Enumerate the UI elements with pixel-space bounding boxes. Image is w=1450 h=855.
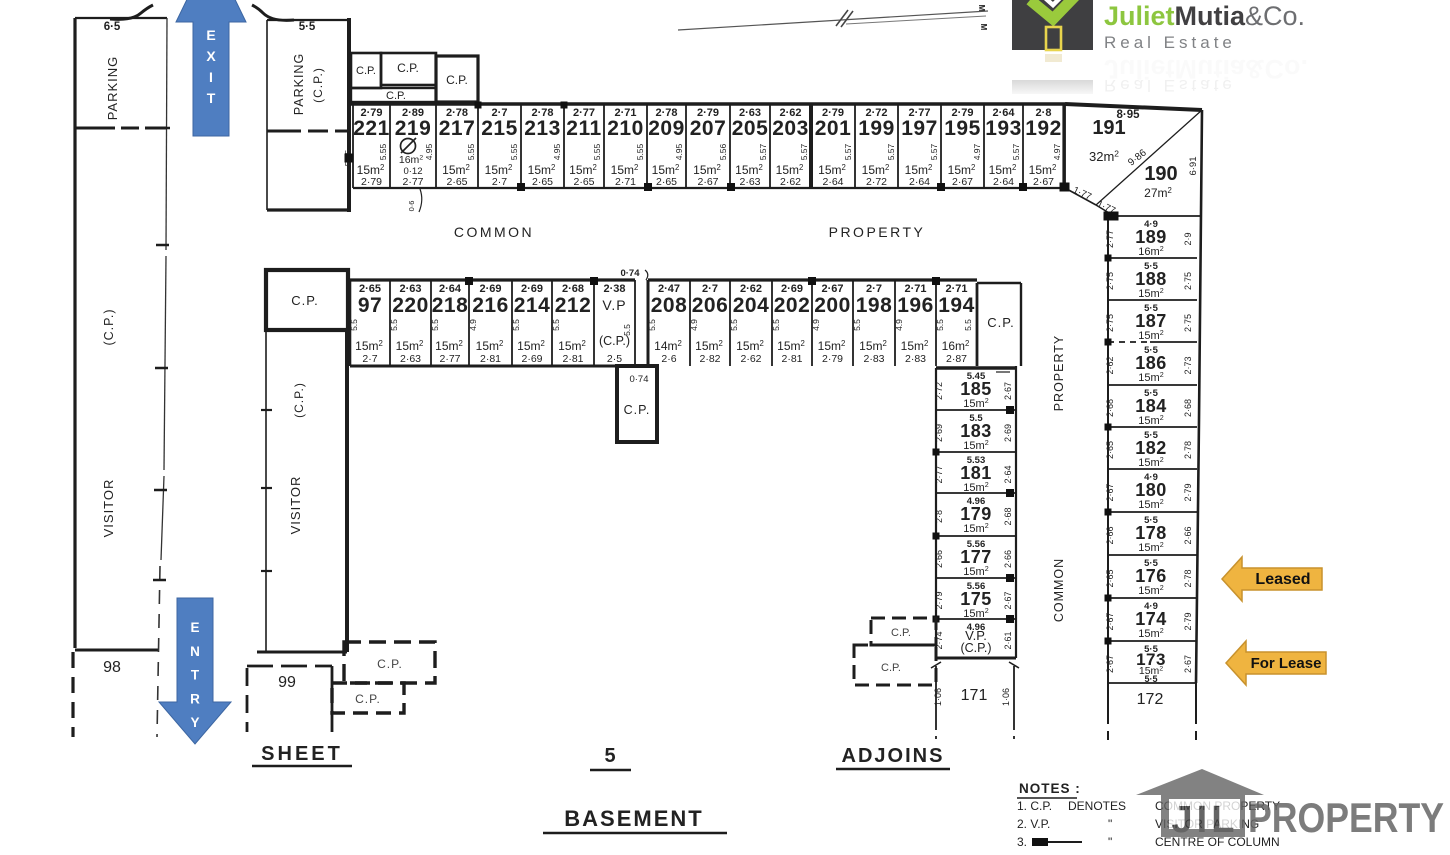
svg-text:5.55: 5.55 — [466, 143, 476, 160]
svg-text:2·75: 2·75 — [1105, 272, 1115, 290]
svg-text:2·64: 2·64 — [909, 176, 930, 188]
svg-text:2·81: 2·81 — [480, 353, 501, 365]
svg-text:5.5: 5.5 — [622, 324, 632, 336]
svg-text:4.95: 4.95 — [424, 143, 434, 160]
svg-text:175: 175 — [960, 589, 992, 609]
svg-text:2·67: 2·67 — [1003, 591, 1013, 609]
svg-text:97: 97 — [358, 294, 382, 317]
svg-text:218: 218 — [432, 294, 469, 317]
svg-text:2·79: 2·79 — [822, 353, 843, 365]
svg-text:2·65: 2·65 — [532, 176, 553, 188]
svg-text:203: 203 — [772, 117, 809, 140]
svg-text:2·69: 2·69 — [521, 353, 542, 365]
svg-text:199: 199 — [858, 117, 895, 140]
svg-text:2. V.P.: 2. V.P. — [1017, 817, 1050, 831]
svg-text:PROPERTY: PROPERTY — [1248, 794, 1444, 841]
svg-text:176: 176 — [1135, 566, 1167, 586]
svg-text:(C.P.): (C.P.) — [102, 308, 116, 345]
svg-text:4.9: 4.9 — [689, 319, 699, 331]
svg-text:C.P.: C.P. — [881, 662, 901, 674]
svg-text:2·82: 2·82 — [699, 353, 720, 365]
svg-text:5.55: 5.55 — [509, 143, 519, 160]
svg-text:2·62: 2·62 — [1105, 356, 1115, 374]
svg-text:2·68: 2·68 — [1105, 399, 1115, 417]
svg-text:4.9: 4.9 — [468, 319, 478, 331]
svg-text:C.P.: C.P. — [446, 73, 468, 87]
svg-text:205: 205 — [732, 117, 769, 140]
svg-text:2·9: 2·9 — [1183, 232, 1193, 245]
svg-text:C.P.: C.P. — [624, 403, 651, 417]
svg-text:209: 209 — [648, 117, 685, 140]
svg-text:2·77: 2·77 — [1105, 230, 1115, 248]
svg-text:195: 195 — [944, 117, 981, 140]
svg-text:PARKING: PARKING — [292, 53, 306, 115]
svg-text:5.56: 5.56 — [718, 143, 728, 160]
svg-text:JulietMutia&Co.: JulietMutia&Co. — [1104, 54, 1308, 84]
svg-text:2·83: 2·83 — [863, 353, 884, 365]
svg-text:5.5: 5.5 — [729, 319, 739, 331]
svg-text:192: 192 — [1025, 117, 1062, 140]
svg-text:211: 211 — [566, 117, 601, 140]
svg-text:C.P.: C.P. — [987, 315, 1015, 330]
svg-text:Y: Y — [190, 715, 199, 730]
svg-text:5.57: 5.57 — [929, 143, 939, 160]
svg-text:(C.P.): (C.P.) — [960, 641, 991, 655]
svg-text:2·67: 2·67 — [1105, 483, 1115, 501]
svg-text:SHEET: SHEET — [261, 743, 343, 765]
svg-text:C.P.: C.P. — [356, 65, 376, 77]
svg-text:1·06: 1·06 — [1001, 688, 1011, 706]
svg-text:198: 198 — [856, 294, 893, 317]
svg-text:5.55: 5.55 — [592, 143, 602, 160]
svg-text:2·67: 2·67 — [1033, 176, 1054, 188]
svg-text:DENOTES: DENOTES — [1068, 799, 1126, 813]
svg-text:5.5: 5.5 — [511, 319, 521, 331]
svg-text:2·67: 2·67 — [697, 176, 718, 188]
svg-text:PARKING: PARKING — [105, 56, 120, 121]
svg-text:2·79: 2·79 — [1183, 483, 1193, 501]
svg-text:C.P.: C.P. — [386, 90, 406, 102]
svg-text:5.57: 5.57 — [758, 143, 768, 160]
svg-text:99: 99 — [278, 674, 296, 691]
svg-text:2·7: 2·7 — [492, 176, 507, 188]
svg-text:2·65: 2·65 — [656, 176, 677, 188]
svg-text:3.: 3. — [1017, 835, 1027, 849]
svg-text:2·63: 2·63 — [739, 176, 760, 188]
svg-text:4.97: 4.97 — [972, 143, 982, 160]
svg-text:208: 208 — [651, 294, 688, 317]
svg-text:2·64: 2·64 — [993, 176, 1014, 188]
svg-text:4.9: 4.9 — [894, 319, 904, 331]
svg-text:5·5: 5·5 — [299, 21, 316, 33]
svg-text:202: 202 — [774, 294, 811, 317]
svg-text:196: 196 — [897, 294, 934, 317]
svg-text:2·69: 2·69 — [1003, 424, 1013, 442]
svg-text:": " — [1108, 817, 1112, 831]
svg-text:COMMON: COMMON — [1052, 558, 1066, 622]
svg-text:2·81: 2·81 — [562, 353, 583, 365]
svg-text:2·72: 2·72 — [934, 382, 944, 400]
svg-text:0·74: 0·74 — [620, 268, 640, 279]
svg-text:5.5: 5.5 — [935, 319, 945, 331]
svg-text:183: 183 — [960, 421, 992, 441]
svg-text:C.P.: C.P. — [891, 627, 911, 639]
svg-text:186: 186 — [1135, 353, 1167, 373]
svg-text:E: E — [206, 27, 215, 43]
svg-text:197: 197 — [901, 117, 938, 140]
svg-text:2·61: 2·61 — [1003, 631, 1013, 649]
svg-text:C.P.: C.P. — [291, 293, 319, 308]
svg-text:191: 191 — [1092, 117, 1125, 139]
svg-text:171: 171 — [961, 687, 988, 704]
svg-text:5.5: 5.5 — [551, 319, 561, 331]
svg-text:2·63: 2·63 — [400, 353, 421, 365]
svg-text:185: 185 — [960, 379, 992, 399]
svg-text:2·68: 2·68 — [1183, 399, 1193, 417]
svg-text:2·5: 2·5 — [607, 353, 622, 365]
svg-text:1·06: 1·06 — [933, 688, 943, 706]
svg-text:1. C.P.: 1. C.P. — [1017, 799, 1052, 813]
svg-text:2·6: 2·6 — [661, 353, 676, 365]
svg-text:": " — [1108, 835, 1112, 849]
svg-text:5.5: 5.5 — [647, 319, 657, 331]
svg-text:177: 177 — [960, 547, 992, 567]
svg-text:212: 212 — [555, 294, 592, 317]
svg-text:4.95: 4.95 — [674, 143, 684, 160]
svg-text:5.5: 5.5 — [349, 319, 359, 331]
svg-text:200: 200 — [814, 294, 851, 317]
svg-text:193: 193 — [985, 117, 1022, 140]
svg-text:204: 204 — [733, 294, 770, 317]
svg-text:5.5: 5.5 — [852, 319, 862, 331]
svg-text:2·75: 2·75 — [1105, 314, 1115, 332]
svg-text:201: 201 — [815, 117, 852, 140]
svg-text:2·67: 2·67 — [1003, 382, 1013, 400]
svg-text:2·67: 2·67 — [1105, 612, 1115, 630]
svg-text:2·66: 2·66 — [1003, 550, 1013, 568]
svg-text:181: 181 — [960, 463, 992, 483]
svg-text:Leased: Leased — [1255, 571, 1310, 588]
svg-text:2·65: 2·65 — [573, 176, 594, 188]
svg-text:210: 210 — [607, 117, 644, 140]
svg-text:179: 179 — [960, 504, 992, 524]
svg-text:5.5: 5.5 — [389, 319, 399, 331]
svg-text:213: 213 — [524, 117, 561, 140]
svg-text:R: R — [190, 691, 200, 706]
svg-text:COMMON: COMMON — [454, 224, 534, 240]
svg-text:2·75: 2·75 — [1183, 272, 1193, 290]
svg-text:For Lease: For Lease — [1251, 655, 1322, 672]
svg-text:5: 5 — [604, 745, 615, 767]
svg-text:219: 219 — [395, 117, 432, 140]
svg-text:220: 220 — [392, 294, 429, 317]
svg-text:(C.P.): (C.P.) — [292, 382, 306, 418]
svg-text:2·65: 2·65 — [446, 176, 467, 188]
svg-text:2·75: 2·75 — [1183, 314, 1193, 332]
svg-text:98: 98 — [103, 659, 121, 676]
svg-text:214: 214 — [514, 294, 551, 317]
svg-text:216: 216 — [472, 294, 509, 317]
svg-text:T: T — [207, 90, 216, 106]
svg-text:2·83: 2·83 — [905, 353, 926, 365]
svg-text:X: X — [206, 48, 216, 64]
svg-text:E: E — [190, 620, 199, 635]
svg-text:6·5: 6·5 — [104, 21, 121, 33]
svg-text:2·67: 2·67 — [1105, 655, 1115, 673]
svg-text:ADJOINS: ADJOINS — [842, 745, 945, 767]
svg-text:5.57: 5.57 — [799, 143, 809, 160]
svg-text:2·65: 2·65 — [1105, 441, 1115, 459]
svg-text:I: I — [209, 69, 213, 85]
svg-text:2·81: 2·81 — [781, 353, 802, 365]
svg-text:0·6: 0·6 — [407, 201, 416, 212]
svg-text:2·67: 2·67 — [952, 176, 973, 188]
svg-text:Real Estate: Real Estate — [1104, 33, 1236, 52]
svg-text:VISITOR: VISITOR — [288, 476, 303, 535]
svg-text:4.97: 4.97 — [1052, 143, 1062, 160]
svg-text:2·64: 2·64 — [1003, 465, 1013, 483]
svg-text:215: 215 — [481, 117, 518, 140]
svg-text:2·68: 2·68 — [1003, 507, 1013, 525]
svg-text:2·77: 2·77 — [934, 465, 944, 483]
svg-text:C.P.: C.P. — [397, 61, 419, 75]
svg-text:PROPERTY: PROPERTY — [829, 224, 926, 240]
svg-text:2·73: 2·73 — [1183, 356, 1193, 374]
svg-text:2·7: 2·7 — [362, 353, 377, 365]
svg-text:2·79: 2·79 — [934, 591, 944, 609]
svg-text:2·66: 2·66 — [1105, 526, 1115, 544]
svg-text:JulietMutia&Co.: JulietMutia&Co. — [1104, 1, 1305, 31]
svg-text:2·87: 2·87 — [946, 353, 967, 365]
svg-text:2·62: 2·62 — [780, 176, 801, 188]
svg-text:5.57: 5.57 — [886, 143, 896, 160]
svg-text:2·38: 2·38 — [603, 283, 625, 295]
svg-text:5.55: 5.55 — [635, 143, 645, 160]
svg-text:5.5: 5.5 — [771, 319, 781, 331]
svg-text:5.57: 5.57 — [1011, 143, 1021, 160]
svg-text:2·79: 2·79 — [361, 176, 382, 188]
svg-text:190: 190 — [1144, 163, 1177, 185]
svg-text:2·69: 2·69 — [934, 424, 944, 442]
svg-text:221: 221 — [353, 117, 390, 140]
svg-text:2·66: 2·66 — [934, 550, 944, 568]
svg-text:206: 206 — [692, 294, 729, 317]
svg-text:2·78: 2·78 — [1183, 569, 1193, 587]
svg-text:JIL: JIL — [1172, 799, 1239, 841]
svg-text:2·77: 2·77 — [439, 353, 460, 365]
svg-text:180: 180 — [1135, 480, 1167, 500]
svg-text:C.P.: C.P. — [377, 657, 403, 671]
svg-text:N: N — [190, 644, 200, 659]
svg-text:184: 184 — [1135, 396, 1167, 416]
svg-text:BASEMENT: BASEMENT — [564, 806, 703, 831]
svg-text:0·74: 0·74 — [629, 374, 648, 385]
svg-text:2·65: 2·65 — [1105, 569, 1115, 587]
svg-text:2·79: 2·79 — [1183, 612, 1193, 630]
svg-text:174: 174 — [1135, 609, 1167, 629]
svg-text:182: 182 — [1135, 438, 1167, 458]
svg-text:178: 178 — [1135, 523, 1167, 543]
svg-text:4.95: 4.95 — [552, 143, 562, 160]
svg-text:207: 207 — [690, 117, 727, 140]
svg-text:5.57: 5.57 — [843, 143, 853, 160]
svg-text:217: 217 — [439, 117, 476, 140]
svg-text:VISITOR: VISITOR — [101, 479, 116, 538]
svg-text:2·77: 2·77 — [402, 176, 423, 188]
svg-text:M: M — [979, 24, 988, 31]
svg-text:5.55: 5.55 — [378, 143, 388, 160]
svg-text:4.9: 4.9 — [811, 319, 821, 331]
svg-text:M: M — [977, 5, 986, 12]
svg-text:5.5: 5.5 — [963, 319, 973, 331]
svg-text:(C.P.): (C.P.) — [311, 67, 325, 103]
svg-text:172: 172 — [1137, 691, 1164, 708]
svg-text:V.P: V.P — [602, 297, 626, 313]
svg-text:188: 188 — [1135, 269, 1167, 289]
svg-text:2·8: 2·8 — [934, 510, 944, 523]
svg-text:5.5: 5.5 — [430, 319, 440, 331]
svg-text:194: 194 — [938, 294, 975, 317]
svg-text:NOTES :: NOTES : — [1019, 781, 1081, 796]
svg-text:2·72: 2·72 — [866, 176, 887, 188]
svg-text:2·78: 2·78 — [1183, 441, 1193, 459]
svg-text:2·66: 2·66 — [1183, 526, 1193, 544]
svg-text:C.P.: C.P. — [355, 692, 381, 706]
svg-text:PROPERTY: PROPERTY — [1052, 335, 1066, 412]
svg-text:T: T — [191, 668, 200, 683]
svg-text:2·67: 2·67 — [1183, 655, 1193, 673]
svg-text:187: 187 — [1135, 311, 1167, 331]
svg-text:2·64: 2·64 — [822, 176, 843, 188]
svg-text:2·71: 2·71 — [615, 176, 636, 188]
svg-text:6·91: 6·91 — [1188, 156, 1199, 175]
svg-text:189: 189 — [1135, 227, 1167, 247]
svg-text:2·62: 2·62 — [740, 353, 761, 365]
